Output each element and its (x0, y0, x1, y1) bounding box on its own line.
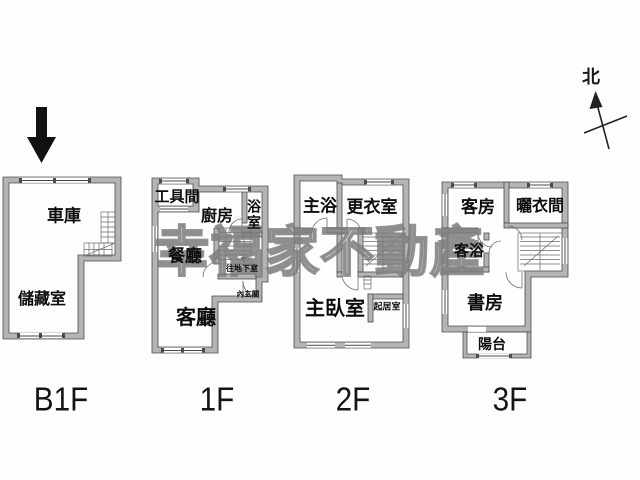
room-label-guest-bath: 客浴 (454, 244, 484, 259)
room-label-study: 書房 (467, 294, 503, 312)
room-label-drying-room: 曬衣間 (516, 199, 564, 215)
room-label-master-bedroom: 主臥室 (305, 299, 365, 319)
room-label-inner-foyer: 內玄關 (237, 290, 260, 298)
b1f-walls (3, 177, 121, 339)
room-label-balcony: 陽台 (478, 337, 506, 351)
b1f-plan (3, 177, 121, 339)
floor-title-1f: 1F (200, 383, 235, 416)
b1f-stairs (84, 212, 115, 256)
floor-title-3f: 3F (493, 383, 528, 416)
room-label-guest-room: 客房 (461, 199, 495, 216)
door-opening (468, 327, 486, 332)
room-label-bathroom: 浴室 (247, 199, 261, 231)
door-arc (489, 241, 501, 253)
floorplan-sheet: 幸福家不動產 車庫 儲藏室 工具間 廚房 浴室 餐廳 客廳 往地下室 內玄關 主… (0, 0, 640, 480)
north-arrowhead-icon (590, 91, 603, 109)
entrance-arrow-icon (27, 107, 56, 163)
room-label-to-basement: 往地下室 (226, 265, 258, 273)
door-arc (506, 272, 522, 288)
floor-title-2f: 2F (336, 383, 371, 416)
nook-wall (368, 294, 373, 322)
floor-title-b1f: B1F (34, 383, 88, 416)
room-label-master-bath: 主浴 (303, 198, 337, 215)
room-label-dining: 餐廳 (168, 248, 202, 265)
room-label-kitchen: 廚房 (201, 209, 233, 225)
room-label-storage: 儲藏室 (18, 292, 66, 308)
divider-wall (504, 182, 509, 223)
north-label: 北 (582, 63, 600, 89)
room-label-living: 客廳 (176, 308, 216, 328)
room-label-toolroom: 工具間 (154, 190, 199, 205)
3f-stairs (518, 233, 562, 271)
room-label-garage: 車庫 (47, 208, 81, 225)
room-label-sitting-room: 起居室 (373, 303, 400, 312)
room-label-walkin-closet: 更衣室 (347, 199, 398, 216)
north-compass (584, 91, 627, 149)
